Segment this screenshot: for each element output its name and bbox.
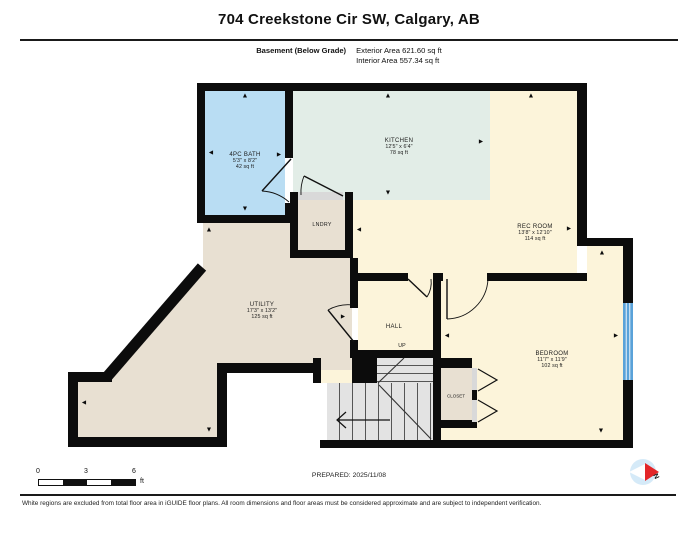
wall-right-upper: [577, 83, 587, 246]
wall-utility-hall-a: [350, 258, 358, 308]
wall-bump-bottom: [68, 437, 227, 447]
dim-arrow-icon: ►: [276, 152, 283, 159]
room-label-closet: CLOSET: [447, 394, 465, 399]
page-title: 704 Creekstone Cir SW, Calgary, AB: [0, 11, 698, 28]
room-label-bedroom: BEDROOM 11'7" x 11'9" 102 sq ft: [535, 351, 568, 369]
dim-arrow-icon: ◄: [81, 400, 88, 407]
hall-landing-fill: [320, 358, 352, 383]
floor-subtitle: Basement (Below Grade) Exterior Area 621…: [0, 46, 698, 66]
north-compass-icon: [629, 459, 659, 485]
dim-arrow-icon: ▲: [385, 93, 392, 100]
dim-arrow-icon: ◄: [208, 150, 215, 157]
wall-bath-bottom: [197, 215, 296, 223]
dim-arrow-icon: ◄: [356, 227, 363, 234]
stairs-lower-flight: [327, 383, 433, 440]
stairs-upper-flight: [377, 358, 433, 383]
footer-divider: [20, 494, 676, 496]
dim-arrow-icon: ▼: [242, 206, 249, 213]
dim-arrow-icon: ▼: [206, 427, 213, 434]
wall-divider-b: [487, 273, 587, 281]
wall-right-outer: [623, 238, 633, 448]
wall-rec-hall-stub: [350, 273, 408, 281]
dim-arrow-icon: ►: [566, 226, 573, 233]
dim-arrow-icon: ▼: [385, 190, 392, 197]
room-label-laundry: LNDRY: [312, 222, 331, 228]
closet-door-track-top: [472, 368, 477, 390]
wall-laundry-right: [345, 192, 353, 258]
dim-arrow-icon: ▲: [528, 93, 535, 100]
wall-closet-end-stub: [472, 422, 477, 428]
wall-top: [197, 83, 587, 91]
wall-stair-chunk: [352, 358, 377, 383]
wall-closet-bottom: [441, 420, 472, 428]
wall-utility-bottom: [217, 363, 320, 373]
laundry-appliance-strip: [298, 192, 343, 200]
room-label-hall: HALL: [386, 324, 402, 330]
dim-arrow-icon: ►: [478, 139, 485, 146]
north-label: N: [651, 473, 659, 481]
floorplan-page: 704 Creekstone Cir SW, Calgary, AB Basem…: [0, 0, 698, 540]
floor-label: Basement (Below Grade): [256, 46, 346, 66]
scale-tick-0: 0: [36, 468, 40, 475]
wall-hall-bottom: [352, 350, 433, 358]
room-label-kitchen: KITCHEN 12'5" x 6'4" 78 sq ft: [385, 138, 413, 156]
wall-closet-mid-stub: [472, 390, 477, 400]
closet-door-track-bottom: [472, 400, 477, 422]
wall-laundry-bottom: [290, 250, 353, 258]
wall-bottom: [320, 440, 633, 448]
scale-unit: ft: [140, 478, 144, 485]
wall-landing-left: [313, 358, 321, 383]
scale-tick-3: 3: [84, 468, 88, 475]
prepared-date: PREPARED: 2025/11/08: [269, 472, 429, 479]
dim-arrow-icon: ▼: [598, 428, 605, 435]
floor-areas: Exterior Area 621.60 sq ft Interior Area…: [356, 46, 442, 66]
wall-void-left: [217, 363, 227, 447]
wall-laundry-left: [290, 192, 298, 258]
wall-closet-top: [441, 358, 472, 368]
room-label-rec-room: REC ROOM 13'8" x 12'10" 114 sq ft: [517, 224, 552, 242]
wall-bath-right-a: [285, 91, 293, 158]
exterior-area: Exterior Area 621.60 sq ft: [356, 46, 442, 56]
stairs-up-label: UP: [398, 343, 406, 349]
dim-arrow-icon: ▲: [242, 93, 249, 100]
interior-area: Interior Area 557.34 sq ft: [356, 56, 442, 66]
wall-bump-top: [68, 372, 112, 382]
scale-tick-6: 6: [132, 468, 136, 475]
wall-bump-left: [68, 372, 78, 447]
dim-arrow-icon: ▲: [599, 250, 606, 257]
wall-left-upper: [197, 83, 205, 223]
room-label-utility: UTILITY 17'3" x 13'2" 125 sq ft: [247, 302, 277, 320]
wall-bedroom-left: [433, 273, 441, 448]
header-divider: [20, 39, 678, 41]
dim-arrow-icon: ◄: [444, 333, 451, 340]
room-label-bath: 4PC BATH 5'3" x 8'2" 42 sq ft: [229, 152, 260, 170]
dim-arrow-icon: ►: [613, 333, 620, 340]
dim-arrow-icon: ▲: [206, 227, 213, 234]
dim-arrow-icon: ►: [340, 314, 347, 321]
hall-fill: [358, 281, 433, 358]
scale-bar: [38, 479, 136, 486]
disclaimer-text: White regions are excluded from total fl…: [22, 500, 678, 507]
